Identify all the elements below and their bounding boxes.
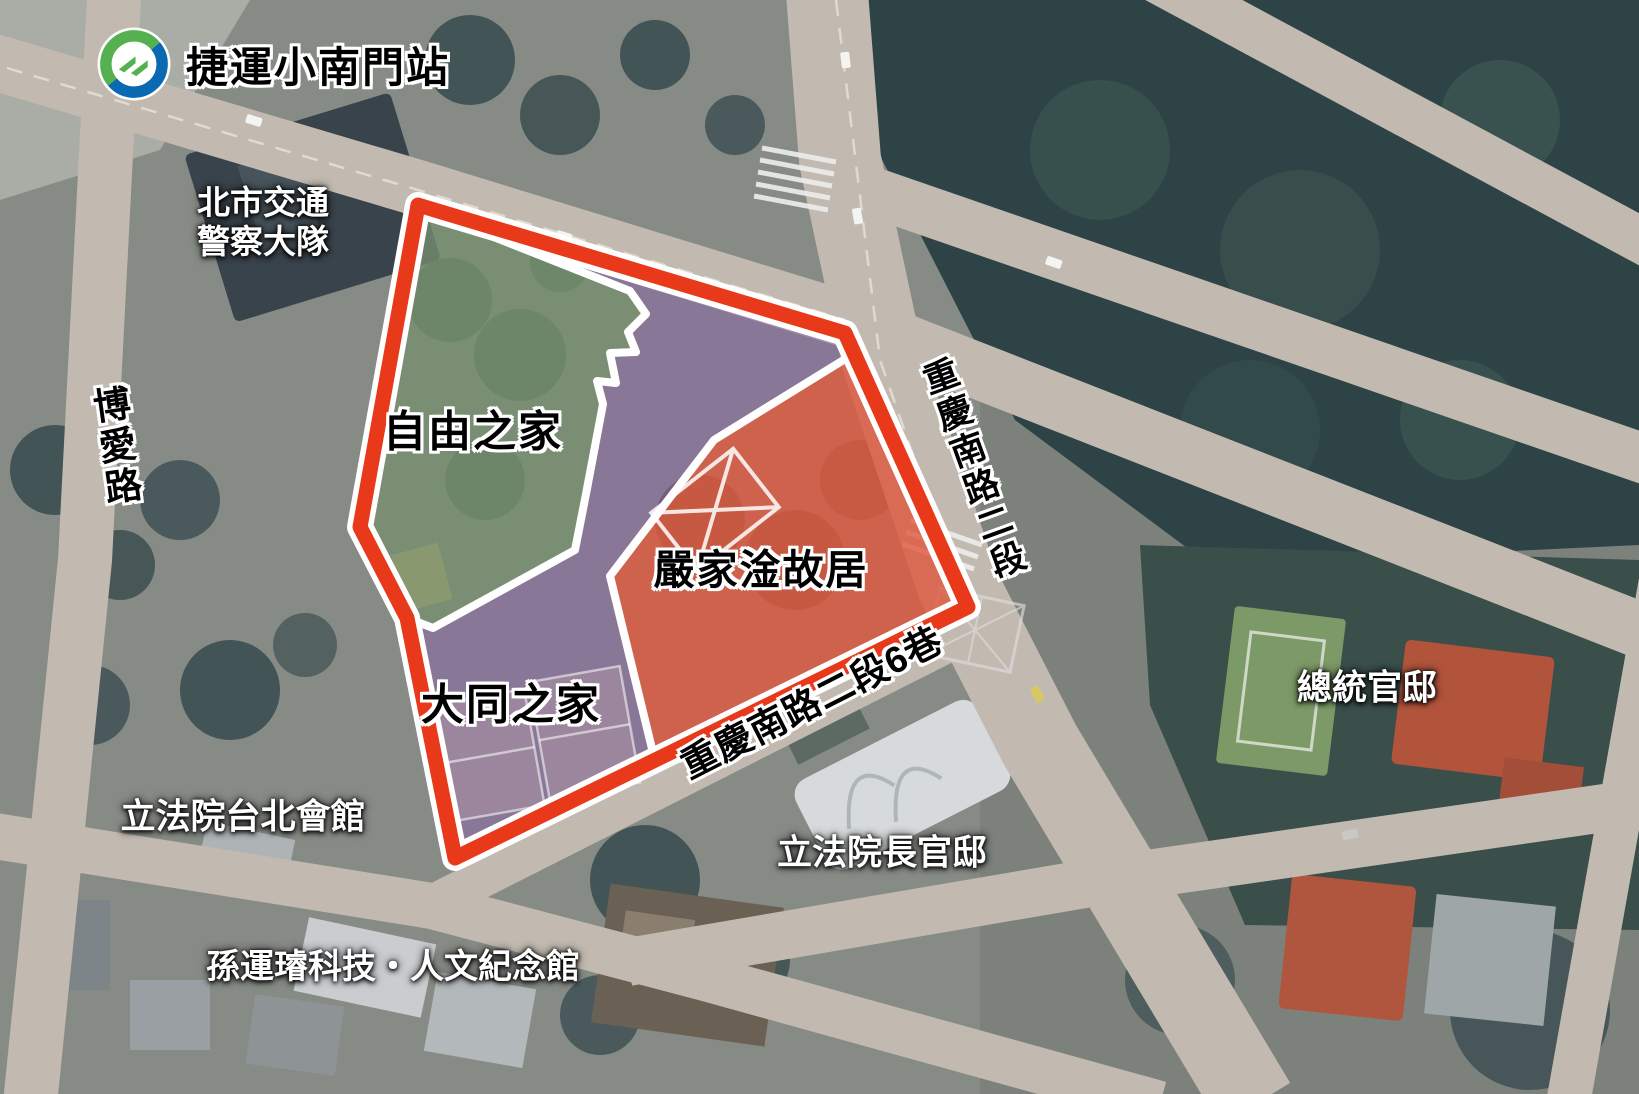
station-name: 捷運小南門站 <box>186 34 450 95</box>
map-screenshot: 捷運小南門站 北市交通 警察大隊 博愛路 自由之家 嚴家淦故居 大同之家 重慶南… <box>0 0 1639 1094</box>
taipei-metro-logo-icon <box>96 26 172 102</box>
station-badge: 捷運小南門站 <box>96 26 450 102</box>
satellite-basemap <box>0 0 1639 1094</box>
